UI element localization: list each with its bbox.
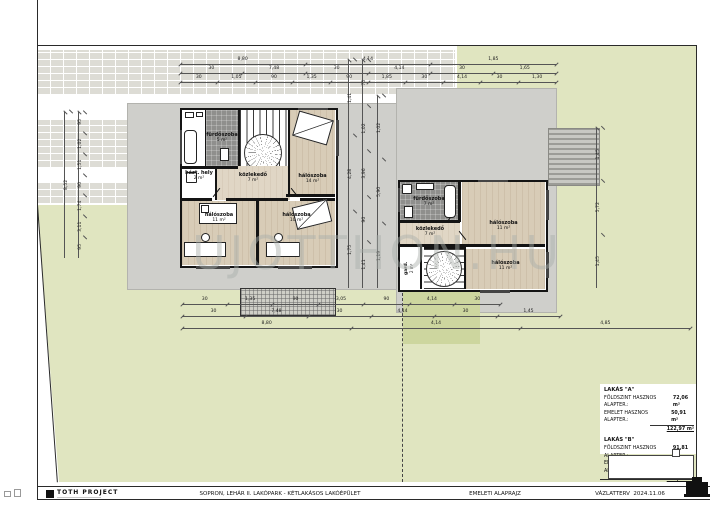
firm-logo-icon: [46, 490, 54, 498]
firm-tagline-placeholder: [57, 497, 101, 499]
section-sketch-ground-line: [600, 479, 697, 480]
dimension-label: 90: [364, 298, 409, 303]
dimension-label: 4,28: [349, 136, 355, 212]
dimension-label: 90: [273, 298, 318, 303]
pillow: [201, 205, 209, 213]
dimension-label: 8,52: [65, 112, 71, 258]
dimension-label: 7,48: [245, 310, 308, 315]
wc-fixture: [220, 148, 229, 161]
parcel-division-dashed-line: [402, 288, 403, 482]
dimension-label: 1,35: [293, 76, 331, 81]
dimension-label: 30: [455, 298, 500, 303]
dimension-label: 1,02: [363, 106, 369, 152]
dimension-label: 30: [431, 67, 494, 72]
wc-fixture: [404, 206, 413, 218]
titlebar-bottom-line: [37, 499, 710, 500]
dimension-label: 1,30: [518, 76, 556, 81]
dimension-label: 95: [79, 237, 85, 258]
wall: [215, 168, 217, 200]
fold-mark: [4, 491, 11, 497]
fold-mark: [14, 489, 21, 497]
window: [180, 130, 183, 164]
dimension-label: 90: [255, 76, 293, 81]
dimension-label: 90: [79, 175, 85, 196]
dimension-chain-bottom-1: 301,35903,05904,1430: [182, 298, 500, 305]
washer-fixture: [186, 172, 197, 183]
dimension-label: 7,48: [243, 67, 306, 72]
dimension-label: 1,51: [79, 154, 85, 175]
dimension-label: 3,05: [318, 298, 363, 303]
dimension-label: 8,80: [180, 58, 305, 63]
titlebar-top-line: [37, 486, 710, 487]
sink-fixture: [416, 183, 434, 190]
dimension-label: 1,85: [368, 76, 406, 81]
firm-logo-block: TOTH PROJECT: [46, 488, 118, 499]
dimension-label: 1,41: [349, 60, 355, 136]
dimension-label: 1,85: [431, 58, 556, 63]
legend-unit-b-title: LAKÁS "B": [604, 436, 694, 444]
dimension-chain-bottom-2: 307,48304,14301,45: [182, 310, 560, 317]
section-sketch: [608, 455, 694, 479]
firm-name: TOTH PROJECT: [57, 489, 118, 496]
drawing-date: 2024.11.06: [633, 491, 665, 497]
wall: [182, 198, 212, 201]
dimension-label: 4,14: [371, 310, 434, 315]
legend-panel: LAKÁS "A" FÖLDSZINT HASZNOS ALAPTER.: 72…: [600, 384, 696, 454]
dimension-label: 1,35: [227, 298, 272, 303]
section-sketch-chimney: [672, 449, 680, 457]
bathtub-fixture: [184, 130, 197, 164]
dimension-label: 30: [434, 310, 497, 315]
legend-unit-a-total: 122,97 m²: [650, 425, 694, 433]
drawing-status: VÁZLATTERV: [595, 491, 630, 497]
dimension-chain-bottom-3: 8,804,144,85: [182, 322, 690, 329]
dimension-label: 30: [180, 67, 243, 72]
dimension-label: 1,02: [79, 133, 85, 154]
dimension-chain-right-1: 1,455,721,45: [596, 128, 603, 288]
wc-fixture: [196, 112, 203, 117]
dimension-label: 1,65: [493, 67, 556, 72]
dimension-label: 30: [308, 310, 371, 315]
wall: [182, 166, 238, 169]
dimension-label: 5,72: [597, 181, 603, 234]
sink-fixture: [185, 112, 194, 118]
dimension-chain-left-1: 8,52: [64, 112, 71, 258]
wall: [458, 182, 461, 222]
dimension-label: 4,85: [521, 322, 690, 327]
wall: [286, 194, 335, 197]
stamp-icon-top: [692, 477, 702, 483]
dimension-label: 4,14: [409, 298, 454, 303]
legend-row: EMELET HASZNOS ALAPTER.: 50,91 m²: [604, 410, 694, 425]
parcel-north-boundary-line: [37, 45, 697, 46]
watermark-text: UJOTTHON.HU: [192, 226, 563, 280]
window: [336, 120, 339, 156]
dimension-label: 8,80: [182, 322, 351, 327]
dimension-label: 1,05: [218, 76, 256, 81]
project-title: SOPRON, LEHÁR II. LAKÓPARK - KÉTLAKÁSOS …: [150, 491, 410, 497]
dimension-label: 1,45: [597, 235, 603, 288]
staircase-a: [238, 110, 290, 166]
window: [398, 188, 401, 212]
dimension-label: 30: [182, 298, 227, 303]
dimension-label: 1,74: [79, 195, 85, 216]
dimension-label: 30: [481, 76, 519, 81]
dimension-label: 3,11: [79, 216, 85, 237]
dimension-label: 95: [79, 112, 85, 133]
sheet-left-frame-line: [37, 0, 38, 500]
dimension-chain-left-2: 951,021,51901,743,1195: [78, 112, 85, 258]
wall: [288, 110, 290, 194]
legend-row: FÖLDSZINT HASZNOS ALAPTER.: 72,06 m²: [604, 395, 694, 410]
dimension-label: 75: [363, 60, 369, 106]
dimension-label: 30: [182, 310, 245, 315]
room-a-hallway-floor: [216, 166, 290, 200]
pergola-deck: [548, 128, 600, 186]
dimension-label: 30: [305, 67, 368, 72]
dimension-label: 4,14: [351, 322, 520, 327]
washer-fixture: [402, 184, 412, 194]
window: [546, 190, 549, 220]
dimension-label: 1,45: [597, 128, 603, 181]
drawing-title: EMELETI ALAPRAJZ: [435, 491, 555, 497]
drawing-status-date: VÁZLATTERV 2024.11.06: [575, 491, 685, 497]
dimension-label: 5,90: [378, 160, 384, 224]
drawing-sheet: fürdőszoba 5 m² házt. hely 2 m² közleked…: [0, 0, 720, 510]
window: [478, 180, 508, 183]
dimension-label: 30: [180, 76, 218, 81]
legend-unit-a-title: LAKÁS "A": [604, 386, 694, 394]
window: [480, 290, 510, 293]
dimension-label: 1,45: [497, 310, 560, 315]
wall: [400, 220, 460, 223]
dimension-label: 4,14: [443, 76, 481, 81]
dimension-label: 4,14: [368, 67, 431, 72]
wall: [205, 110, 207, 166]
bathtub-fixture: [444, 185, 456, 218]
dimension-label: 3,96: [363, 151, 369, 197]
parcel-east-boundary-line: [696, 45, 697, 487]
dimension-label: 1,02: [378, 96, 384, 160]
stamp-icon-base: [684, 494, 710, 497]
window: [298, 108, 328, 111]
dimension-label: 30: [406, 76, 444, 81]
staircase-a-winder: [244, 134, 282, 166]
